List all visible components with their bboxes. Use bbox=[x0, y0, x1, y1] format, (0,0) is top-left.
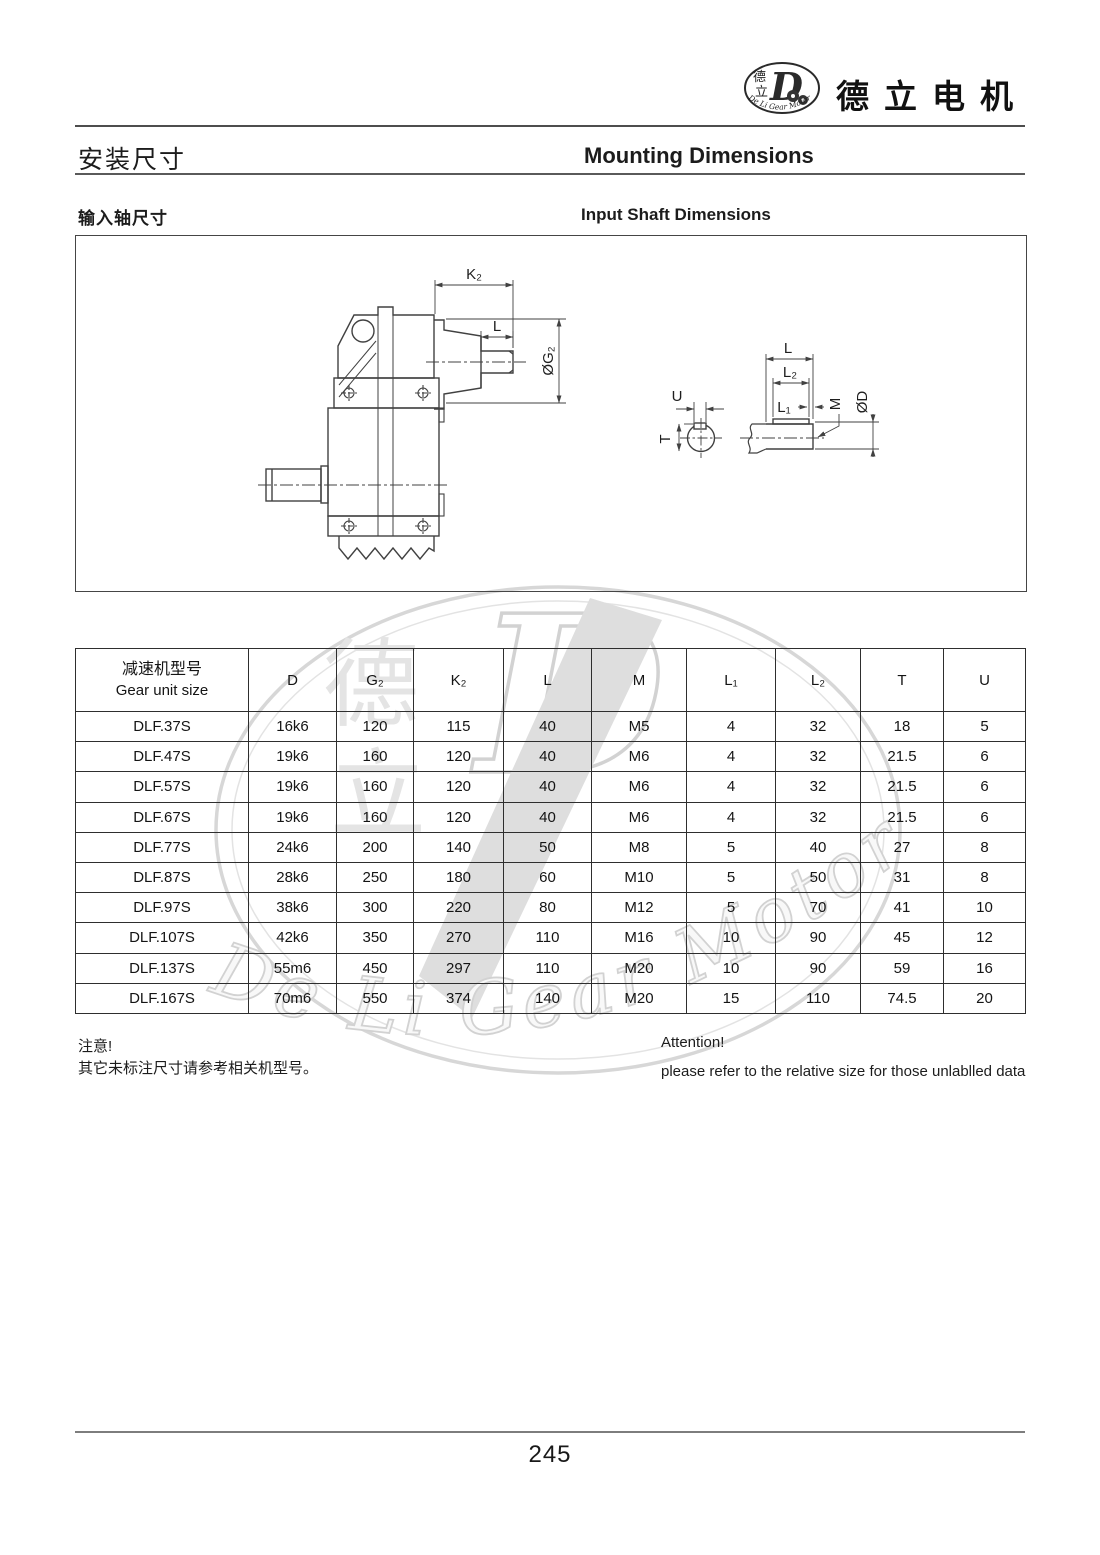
dimension-cell: 55m6 bbox=[249, 953, 337, 983]
gear-unit-size-cell: DLF.57S bbox=[76, 772, 249, 802]
dimension-cell: 5 bbox=[687, 832, 776, 862]
dimension-cell: 6 bbox=[944, 742, 1026, 772]
footer-rule bbox=[75, 1431, 1025, 1433]
dimension-cell: M8 bbox=[592, 832, 687, 862]
dimension-cell: 160 bbox=[337, 772, 414, 802]
section-title-en: Input Shaft Dimensions bbox=[581, 205, 771, 225]
dim-label-l-input: L bbox=[493, 318, 501, 335]
dimension-cell: 6 bbox=[944, 772, 1026, 802]
dimension-cell: 120 bbox=[414, 742, 504, 772]
dimension-cell: 21.5 bbox=[861, 802, 944, 832]
dimension-cell: 250 bbox=[337, 862, 414, 892]
dim-label-l1: L₁ bbox=[777, 399, 790, 416]
dimension-cell: M20 bbox=[592, 983, 687, 1013]
dimension-cell: 5 bbox=[687, 893, 776, 923]
dimension-cell: 40 bbox=[504, 712, 592, 742]
dimension-cell: 40 bbox=[504, 802, 592, 832]
dimension-cell: 50 bbox=[504, 832, 592, 862]
column-header: T bbox=[861, 649, 944, 712]
gear-unit-size-cell: DLF.87S bbox=[76, 862, 249, 892]
header-rule bbox=[75, 125, 1025, 127]
dimension-cell: 160 bbox=[337, 802, 414, 832]
gear-unit-size-header-en: Gear unit size bbox=[76, 681, 248, 701]
dimension-cell: 70m6 bbox=[249, 983, 337, 1013]
dimension-cell: 115 bbox=[414, 712, 504, 742]
gear-unit-size-cell: DLF.167S bbox=[76, 983, 249, 1013]
dimension-cell: 21.5 bbox=[861, 742, 944, 772]
dimension-cell: 4 bbox=[687, 802, 776, 832]
dimension-cell: M16 bbox=[592, 923, 687, 953]
dimension-cell: 12 bbox=[944, 923, 1026, 953]
column-header: L₂ bbox=[776, 649, 861, 712]
page-number: 245 bbox=[75, 1441, 1025, 1469]
dimension-cell: 59 bbox=[861, 953, 944, 983]
gear-unit-size-header: 减速机型号 Gear unit size bbox=[76, 649, 249, 712]
dimension-cell: 10 bbox=[687, 953, 776, 983]
dimension-cell: 38k6 bbox=[249, 893, 337, 923]
dimension-cell: 120 bbox=[414, 772, 504, 802]
dimension-cell: 110 bbox=[776, 983, 861, 1013]
dimension-cell: M6 bbox=[592, 772, 687, 802]
dimension-cell: 110 bbox=[504, 953, 592, 983]
table-body: DLF.37S16k612011540M5432185DLF.47S19k616… bbox=[76, 712, 1026, 1014]
dimension-cell: 110 bbox=[504, 923, 592, 953]
dimension-cell: 140 bbox=[504, 983, 592, 1013]
dimension-cell: 60 bbox=[504, 862, 592, 892]
table-row: DLF.47S19k616012040M643221.56 bbox=[76, 742, 1026, 772]
dimension-cell: 27 bbox=[861, 832, 944, 862]
dimension-cell: 10 bbox=[687, 923, 776, 953]
dimension-cell: 90 bbox=[776, 953, 861, 983]
gear-unit-size-cell: DLF.67S bbox=[76, 802, 249, 832]
dimension-cell: 297 bbox=[414, 953, 504, 983]
note-en: Attention! please refer to the relative … bbox=[661, 1034, 1025, 1080]
dimension-cell: 19k6 bbox=[249, 742, 337, 772]
dim-label-m: M bbox=[827, 398, 844, 411]
table-row: DLF.167S70m6550374140M201511074.520 bbox=[76, 983, 1026, 1013]
dimension-cell: 120 bbox=[337, 712, 414, 742]
dimension-cell: 28k6 bbox=[249, 862, 337, 892]
dimension-cell: 350 bbox=[337, 923, 414, 953]
catalog-page: 德 立 D De Li Gear Motor 德 立 D De Li Gear … bbox=[0, 0, 1100, 1555]
note-cn: 注意! 其它未标注尺寸请参考相关机型号。 bbox=[78, 1036, 318, 1080]
dim-label-l2: L₂ bbox=[783, 364, 797, 381]
dimension-cell: M10 bbox=[592, 862, 687, 892]
dimension-cell: 21.5 bbox=[861, 772, 944, 802]
gear-unit-size-cell: DLF.77S bbox=[76, 832, 249, 862]
dimension-cell: 18 bbox=[861, 712, 944, 742]
dimension-cell: M5 bbox=[592, 712, 687, 742]
gear-unit-size-cell: DLF.97S bbox=[76, 893, 249, 923]
column-header: G₂ bbox=[337, 649, 414, 712]
dimension-cell: 40 bbox=[504, 742, 592, 772]
dimension-cell: 41 bbox=[861, 893, 944, 923]
gear-unit-size-cell: DLF.107S bbox=[76, 923, 249, 953]
dimension-cell: 5 bbox=[687, 862, 776, 892]
dimension-cell: 120 bbox=[414, 802, 504, 832]
dim-label-d: ØD bbox=[854, 391, 871, 414]
table-row: DLF.37S16k612011540M5432185 bbox=[76, 712, 1026, 742]
dimension-cell: 32 bbox=[776, 742, 861, 772]
table-row: DLF.87S28k625018060M10550318 bbox=[76, 862, 1026, 892]
dimension-cell: 200 bbox=[337, 832, 414, 862]
table-row: DLF.57S19k616012040M643221.56 bbox=[76, 772, 1026, 802]
dimension-cell: 16 bbox=[944, 953, 1026, 983]
dimension-cell: 42k6 bbox=[249, 923, 337, 953]
note-cn-title: 注意! bbox=[78, 1036, 318, 1058]
dimension-cell: 19k6 bbox=[249, 772, 337, 802]
column-header: K₂ bbox=[414, 649, 504, 712]
dimension-cell: 8 bbox=[944, 832, 1026, 862]
column-header: L bbox=[504, 649, 592, 712]
dimension-cell: 270 bbox=[414, 923, 504, 953]
gear-unit-size-cell: DLF.137S bbox=[76, 953, 249, 983]
dimension-cell: 4 bbox=[687, 772, 776, 802]
table-row: DLF.107S42k6350270110M1610904512 bbox=[76, 923, 1026, 953]
dimension-cell: 374 bbox=[414, 983, 504, 1013]
dim-label-g2: ØG₂ bbox=[540, 346, 557, 375]
dimension-cell: 31 bbox=[861, 862, 944, 892]
dimension-cell: 40 bbox=[504, 772, 592, 802]
section-title-cn: 输入轴尺寸 bbox=[78, 204, 168, 229]
dimension-cell: 16k6 bbox=[249, 712, 337, 742]
column-header: D bbox=[249, 649, 337, 712]
dimension-cell: 80 bbox=[504, 893, 592, 923]
note-en-body: please refer to the relative size for th… bbox=[661, 1063, 1025, 1080]
dimension-cell: 32 bbox=[776, 772, 861, 802]
gear-unit-size-header-cn: 减速机型号 bbox=[76, 659, 248, 681]
column-header: L₁ bbox=[687, 649, 776, 712]
dimensions-table-wrap: 减速机型号 Gear unit size DG₂K₂LML₁L₂TU DLF.3… bbox=[75, 648, 1025, 1014]
dimension-cell: 450 bbox=[337, 953, 414, 983]
dimension-cell: 15 bbox=[687, 983, 776, 1013]
table-row: DLF.137S55m6450297110M2010905916 bbox=[76, 953, 1026, 983]
emblem-cn-top: 德 bbox=[753, 70, 766, 85]
dimension-cell: 300 bbox=[337, 893, 414, 923]
title-rule bbox=[75, 173, 1025, 175]
dimension-cell: 550 bbox=[337, 983, 414, 1013]
dimension-cell: M6 bbox=[592, 802, 687, 832]
dimension-cell: 74.5 bbox=[861, 983, 944, 1013]
gear-unit-size-cell: DLF.37S bbox=[76, 712, 249, 742]
dimension-cell: 32 bbox=[776, 802, 861, 832]
dimension-cell: M12 bbox=[592, 893, 687, 923]
note-cn-body: 其它未标注尺寸请参考相关机型号。 bbox=[78, 1058, 318, 1080]
dimension-cell: 220 bbox=[414, 893, 504, 923]
brand-emblem: 德 立 D De Li Gear Motor bbox=[740, 50, 824, 124]
input-shaft-drawing: K₂ L ØG₂ U T L L₂ L₁ M ØD bbox=[76, 236, 1026, 591]
dimension-cell: 4 bbox=[687, 742, 776, 772]
dimension-cell: 4 bbox=[687, 712, 776, 742]
gear-unit-size-cell: DLF.47S bbox=[76, 742, 249, 772]
page-title-cn: 安装尺寸 bbox=[78, 140, 186, 176]
dimension-cell: 45 bbox=[861, 923, 944, 953]
brand-name: 德立电机 bbox=[836, 70, 1028, 118]
dimension-cell: 6 bbox=[944, 802, 1026, 832]
column-header: M bbox=[592, 649, 687, 712]
dimension-cell: M6 bbox=[592, 742, 687, 772]
table-row: DLF.97S38k630022080M125704110 bbox=[76, 893, 1026, 923]
drawing-box: K₂ L ØG₂ U T L L₂ L₁ M ØD bbox=[75, 235, 1027, 592]
dim-label-l-shaft: L bbox=[784, 340, 792, 357]
note-en-title: Attention! bbox=[661, 1034, 1025, 1051]
dimensions-table: 减速机型号 Gear unit size DG₂K₂LML₁L₂TU DLF.3… bbox=[75, 648, 1026, 1014]
dimension-cell: 40 bbox=[776, 832, 861, 862]
table-header-row: 减速机型号 Gear unit size DG₂K₂LML₁L₂TU bbox=[76, 649, 1026, 712]
dimension-cell: M20 bbox=[592, 953, 687, 983]
dim-label-u: U bbox=[672, 388, 683, 405]
dimension-cell: 50 bbox=[776, 862, 861, 892]
dim-label-k2: K₂ bbox=[466, 266, 482, 283]
dimension-cell: 19k6 bbox=[249, 802, 337, 832]
dimension-cell: 140 bbox=[414, 832, 504, 862]
dimension-cell: 180 bbox=[414, 862, 504, 892]
page-title-en: Mounting Dimensions bbox=[584, 143, 814, 169]
dimension-cell: 5 bbox=[944, 712, 1026, 742]
dimension-cell: 160 bbox=[337, 742, 414, 772]
dimension-cell: 32 bbox=[776, 712, 861, 742]
column-header: U bbox=[944, 649, 1026, 712]
dim-label-t: T bbox=[657, 434, 674, 443]
table-row: DLF.77S24k620014050M8540278 bbox=[76, 832, 1026, 862]
table-row: DLF.67S19k616012040M643221.56 bbox=[76, 802, 1026, 832]
dimension-cell: 20 bbox=[944, 983, 1026, 1013]
dimension-cell: 8 bbox=[944, 862, 1026, 892]
dimension-cell: 24k6 bbox=[249, 832, 337, 862]
dimension-cell: 70 bbox=[776, 893, 861, 923]
dimension-cell: 90 bbox=[776, 923, 861, 953]
dimension-cell: 10 bbox=[944, 893, 1026, 923]
